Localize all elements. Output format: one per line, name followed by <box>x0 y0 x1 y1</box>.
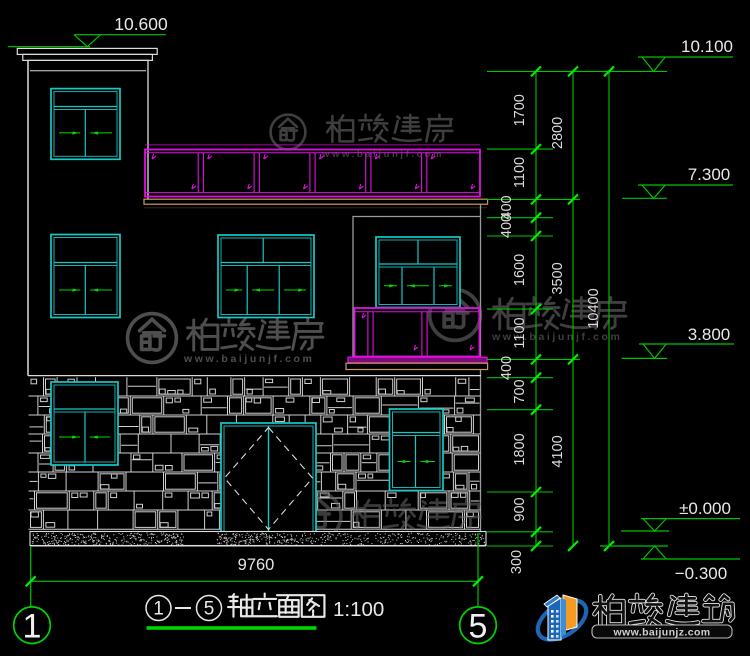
svg-text:400: 400 <box>499 356 515 380</box>
svg-text:400: 400 <box>499 214 515 238</box>
svg-text:www.baijunjz.com: www.baijunjz.com <box>612 627 710 639</box>
svg-text:1: 1 <box>23 608 42 646</box>
svg-text:700: 700 <box>512 379 528 403</box>
svg-text:1100: 1100 <box>512 317 528 348</box>
svg-text:300: 300 <box>509 550 525 574</box>
svg-text:www.baijunjf.com: www.baijunjf.com <box>491 331 622 343</box>
svg-text:1:100: 1:100 <box>333 598 384 621</box>
svg-text:10.100: 10.100 <box>681 37 733 56</box>
svg-text:10400: 10400 <box>586 288 602 328</box>
svg-text:5: 5 <box>469 608 488 646</box>
svg-text:5: 5 <box>204 599 215 620</box>
svg-text:1600: 1600 <box>512 254 528 286</box>
svg-text:www.baijunjf.com: www.baijunjf.com <box>183 353 314 365</box>
svg-text:2800: 2800 <box>550 117 566 149</box>
svg-text:7.300: 7.300 <box>688 165 731 184</box>
svg-text:±0.000: ±0.000 <box>679 499 731 518</box>
svg-text:3.800: 3.800 <box>688 325 731 344</box>
svg-text:1100: 1100 <box>512 157 528 188</box>
svg-text:1800: 1800 <box>512 433 528 465</box>
svg-text:3500: 3500 <box>550 262 566 294</box>
svg-text:1700: 1700 <box>512 94 528 126</box>
svg-text:10.600: 10.600 <box>114 14 168 34</box>
svg-text:4100: 4100 <box>550 435 566 467</box>
svg-text:900: 900 <box>512 497 528 521</box>
svg-text:www.baijunjf.com: www.baijunjf.com <box>321 149 444 160</box>
svg-text:−0.300: −0.300 <box>675 564 727 583</box>
svg-text:1: 1 <box>153 599 164 620</box>
svg-text:9760: 9760 <box>238 556 275 574</box>
